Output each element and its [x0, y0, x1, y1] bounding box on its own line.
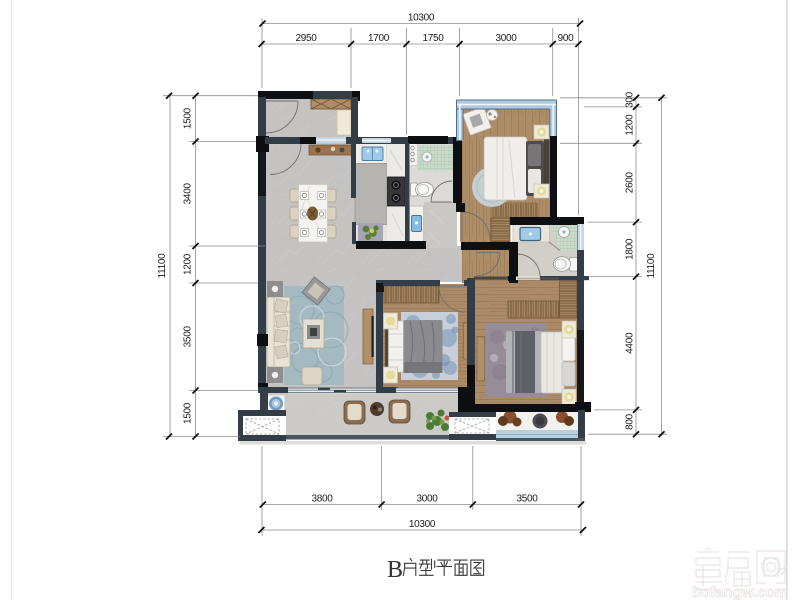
svg-text:3500: 3500 — [516, 494, 538, 505]
svg-text:800: 800 — [625, 413, 636, 430]
svg-text:900: 900 — [558, 33, 575, 44]
svg-text:1500: 1500 — [183, 107, 194, 129]
svg-text:4400: 4400 — [625, 332, 636, 354]
svg-text:2600: 2600 — [625, 171, 636, 193]
svg-text:B: B — [387, 557, 403, 583]
svg-text:1500: 1500 — [183, 402, 194, 424]
svg-text:3500: 3500 — [183, 326, 194, 348]
svg-text:bofangw.com: bofangw.com — [692, 584, 788, 600]
svg-text:300: 300 — [625, 91, 636, 108]
svg-text:1700: 1700 — [368, 33, 390, 44]
svg-text:11100: 11100 — [157, 253, 168, 279]
svg-text:3800: 3800 — [311, 494, 333, 505]
svg-text:1800: 1800 — [625, 238, 636, 260]
svg-text:1200: 1200 — [625, 114, 636, 136]
svg-text:11100: 11100 — [646, 253, 657, 279]
svg-text:1200: 1200 — [183, 253, 194, 275]
svg-text:10300: 10300 — [409, 519, 436, 530]
svg-text:1750: 1750 — [422, 33, 444, 44]
svg-text:3400: 3400 — [183, 183, 194, 205]
svg-text:2950: 2950 — [295, 33, 317, 44]
svg-text:3000: 3000 — [416, 494, 438, 505]
svg-text:10300: 10300 — [408, 13, 435, 24]
svg-text:3000: 3000 — [495, 33, 517, 44]
